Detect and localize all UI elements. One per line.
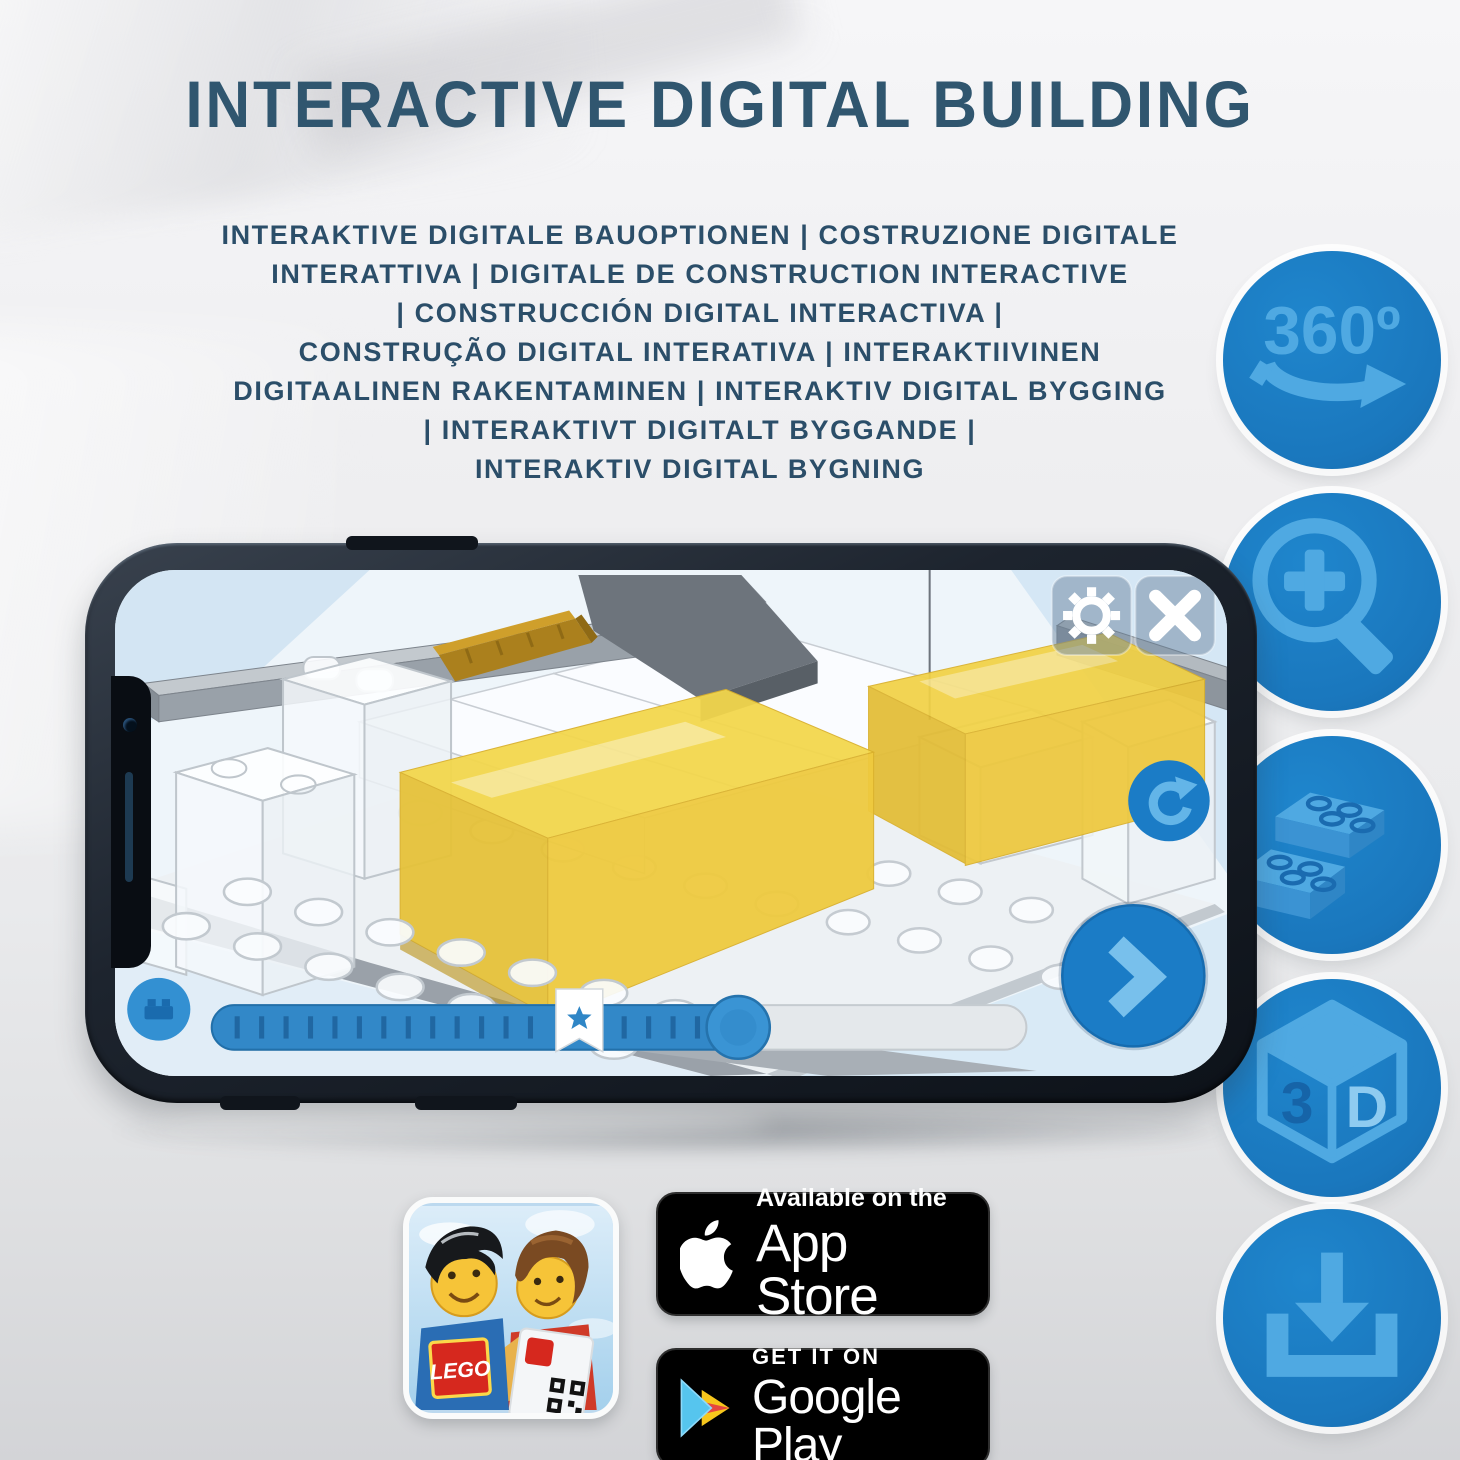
cube-face-3: 3 [1281, 1071, 1314, 1136]
download-feature-badge [1223, 1209, 1441, 1427]
earpiece-speaker [125, 772, 133, 882]
app-store-label: App Store [756, 1217, 970, 1323]
subtitle-line: | CONSTRUCCIÓN DIGITAL INTERACTIVA | [55, 294, 1345, 333]
brick-menu-button[interactable] [127, 978, 190, 1041]
360-label: 360º [1263, 293, 1400, 368]
side-button [415, 1096, 517, 1110]
google-play-label: Google Play [752, 1374, 974, 1460]
zoom-in-icon [1260, 526, 1396, 677]
download-icon [1278, 1253, 1387, 1366]
360-rotation-icon [1267, 364, 1380, 392]
front-camera [123, 718, 137, 732]
rotate-button[interactable] [1128, 760, 1209, 841]
volume-button [346, 536, 478, 550]
next-step-button[interactable] [1061, 904, 1206, 1048]
brick-options-icon [1236, 793, 1384, 919]
close-button[interactable] [1135, 576, 1214, 655]
phone-notch [111, 676, 151, 968]
google-play-badge[interactable]: GET IT ON Google Play [656, 1348, 990, 1460]
subtitle-line: INTERATTIVA | DIGITALE DE CONSTRUCTION I… [55, 255, 1345, 294]
subtitle-line: DIGITAALINEN RAKENTAMINEN | INTERAKTIV D… [55, 372, 1345, 411]
phone-screen [115, 570, 1227, 1076]
lego-app-icon[interactable]: LEGO [403, 1197, 619, 1419]
slider-fill [212, 1005, 742, 1050]
subtitle-line: | INTERAKTIVT DIGITALT BYGGANDE | [55, 411, 1345, 450]
3d-cube-icon: 3 D [1262, 1005, 1402, 1158]
subtitle-line: INTERAKTIVE DIGITALE BAUOPTIONEN | COSTR… [55, 216, 1345, 255]
app-store-tagline: Available on the [756, 1186, 970, 1211]
side-button [220, 1096, 300, 1110]
google-play-tagline: GET IT ON [752, 1346, 974, 1368]
cube-face-d: D [1346, 1075, 1389, 1140]
multilanguage-subtitle: INTERAKTIVE DIGITALE BAUOPTIONEN | COSTR… [55, 216, 1345, 489]
app-store-badge[interactable]: Available on the App Store [656, 1192, 990, 1316]
lego-logo-text: LEGO [429, 1356, 492, 1384]
360-rotation-badge: 360º [1223, 251, 1441, 469]
qr-tablet [509, 1328, 594, 1413]
promo-page: INTERACTIVE DIGITAL BUILDING INTERAKTIVE… [0, 0, 1460, 1460]
google-play-icon [678, 1377, 734, 1439]
apple-logo-icon [680, 1219, 738, 1289]
subtitle-line: CONSTRUÇÃO DIGITAL INTERATIVA | INTERAKT… [55, 333, 1345, 372]
subtitle-line: INTERAKTIV DIGITAL BYGNING [55, 450, 1345, 489]
settings-button[interactable] [1052, 576, 1131, 655]
page-title: INTERACTIVE DIGITAL BUILDING [43, 66, 1397, 142]
smartphone [85, 543, 1257, 1103]
